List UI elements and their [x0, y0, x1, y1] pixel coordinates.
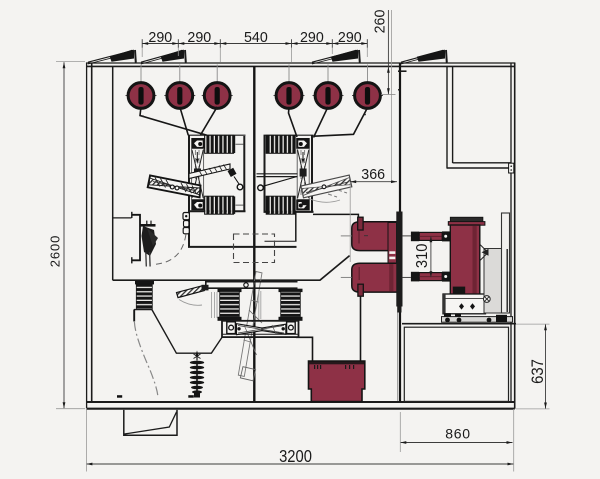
svg-text:290: 290	[338, 30, 362, 46]
svg-text:310: 310	[414, 244, 431, 269]
svg-text:290: 290	[148, 30, 172, 46]
svg-text:637: 637	[530, 359, 548, 384]
svg-text:540: 540	[244, 30, 268, 46]
svg-text:2600: 2600	[47, 235, 62, 268]
svg-text:260: 260	[372, 10, 388, 34]
svg-text:366: 366	[361, 167, 385, 183]
svg-text:860: 860	[445, 425, 470, 441]
svg-text:3200: 3200	[279, 446, 312, 466]
svg-text:290: 290	[300, 30, 324, 46]
svg-text:290: 290	[187, 30, 211, 46]
